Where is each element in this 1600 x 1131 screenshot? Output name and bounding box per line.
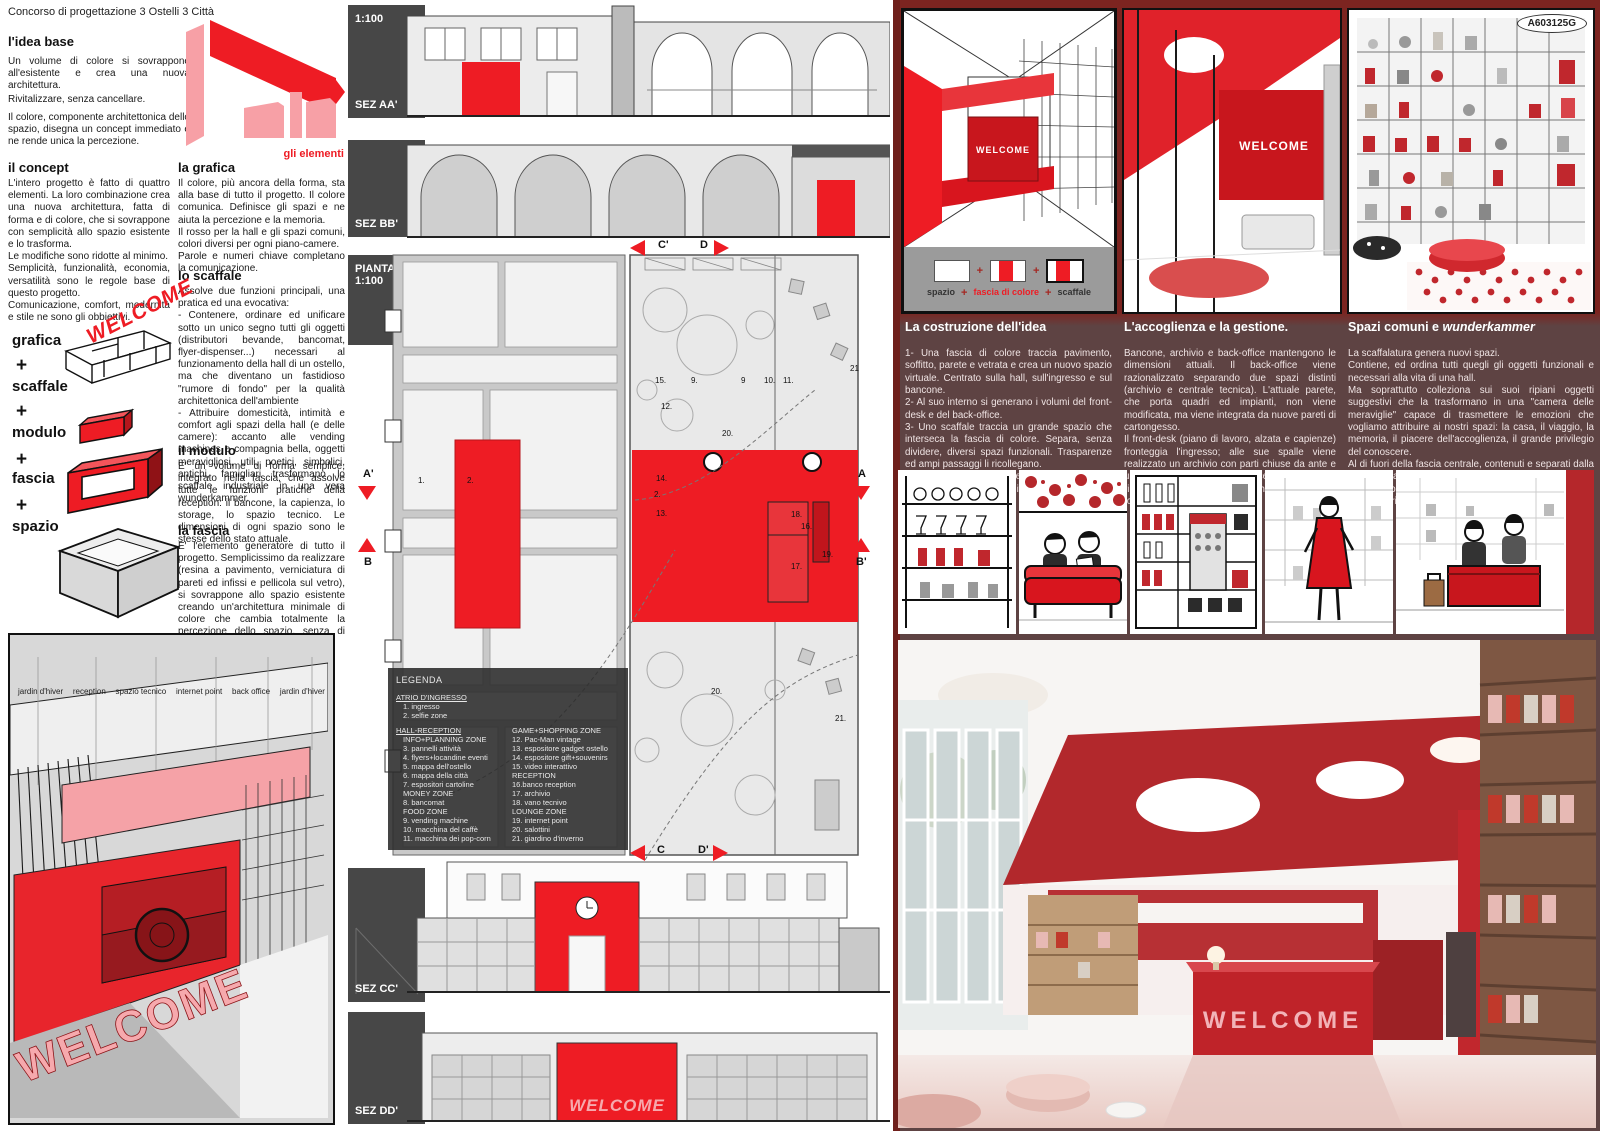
red-bottles xyxy=(918,548,990,566)
list-item: jardin d'hiver xyxy=(280,687,325,696)
list-item: 5. mappa dell'ostello xyxy=(403,762,504,771)
list-item: 16.banco reception xyxy=(512,780,620,789)
list-item: 9. vending machine xyxy=(403,816,504,825)
competition-board: Concorso di progettazione 3 Ostelli 3 Ci… xyxy=(0,0,1600,1131)
welcome-hall-text: WELCOME xyxy=(1239,139,1309,153)
red-desk xyxy=(1448,566,1540,606)
list-item: back office xyxy=(232,687,270,696)
list-item: INFO+PLANNING ZONE xyxy=(403,735,504,744)
list-item: 19. internet point xyxy=(512,816,620,825)
plus-sign: + xyxy=(16,355,27,377)
marker-arrow xyxy=(358,538,376,552)
elements-stack-icons xyxy=(52,325,184,625)
render-hall: WELCOME xyxy=(1122,8,1342,314)
rug-pattern xyxy=(1407,262,1591,310)
red-band xyxy=(1566,470,1594,634)
plus-sign: + xyxy=(16,401,27,423)
plan-legend: LEGENDA ATRIO D'INGRESSO 1. ingresso2. s… xyxy=(388,668,628,850)
welcome-dd-text: WELCOME xyxy=(569,1096,665,1115)
marker-a: A xyxy=(858,468,866,480)
shelf-edge xyxy=(1324,65,1340,255)
section-aa-drawing xyxy=(407,0,890,124)
render-shelving: A603125G xyxy=(1347,8,1595,314)
grafica-heading: la grafica xyxy=(178,160,235,175)
list-item: 6. mappa della città xyxy=(403,771,504,780)
element-fascia: fascia xyxy=(12,470,55,487)
marker-b1: B' xyxy=(856,556,867,568)
red-fascia-band-left xyxy=(455,440,520,628)
dark-pouf xyxy=(1353,236,1401,260)
scaffale-icon xyxy=(1046,259,1084,283)
legend-title: LEGENDA xyxy=(396,675,620,686)
spazio-icon xyxy=(60,529,178,617)
column-heading: Spazi comuni e wunderkammer xyxy=(1348,320,1594,334)
sez-aa-label: SEZ AA' xyxy=(355,99,398,111)
render-wireframe: WELCOME + + spazio + fascia di colore + … xyxy=(901,8,1117,314)
shelving-render-drawing xyxy=(1349,10,1593,312)
round-light xyxy=(1316,761,1404,799)
logo-graphic xyxy=(178,16,345,156)
marker-arrow xyxy=(852,538,870,552)
list-item: 4. flyers+locandine eventi xyxy=(403,753,504,762)
vending-machine xyxy=(1190,514,1226,590)
red-fascia-section xyxy=(462,62,520,116)
fascia-heading: la fascia xyxy=(178,523,229,538)
legend-col2-items: 12. Pac-Man vintage13. espositore gadget… xyxy=(512,735,620,843)
sez-dd-label: SEZ DD' xyxy=(355,1105,398,1117)
list-item: reception xyxy=(73,687,106,696)
panel-vending xyxy=(1130,470,1262,634)
panel-reception xyxy=(1396,470,1594,634)
concept-heading: il concept xyxy=(8,160,69,175)
spazio-icon xyxy=(934,260,970,282)
round-light xyxy=(1136,778,1260,832)
list-item: 10. macchina del caffè xyxy=(403,825,504,834)
wireframe-perspective: WELCOME xyxy=(904,11,1114,247)
list-item: 13. espositore gadget ostello xyxy=(512,744,620,753)
scale-label: 1:100 xyxy=(355,13,383,25)
list-item: RECEPTION xyxy=(512,771,620,780)
welcome-render-text: WELCOME xyxy=(976,145,1030,155)
legend-col1-header: HALL-RECEPTION xyxy=(396,726,504,735)
section-dd-drawing: WELCOME xyxy=(407,1015,890,1128)
legend-atrio-header: ATRIO D'INGRESSO xyxy=(396,693,620,702)
sofa-seat xyxy=(1025,578,1121,604)
list-item: 3. pannelli attività xyxy=(403,744,504,753)
modulo-heading: il modulo xyxy=(178,443,236,458)
round-rug xyxy=(1149,258,1269,298)
legend-col2: GAME+SHOPPING ZONE 12. Pac-Man vintage13… xyxy=(512,726,620,843)
diagram-labels: spazio + fascia di colore + scaffale xyxy=(927,287,1091,299)
plus-sign: + xyxy=(1033,265,1039,277)
marker-c1: C' xyxy=(658,239,669,251)
concept-diagram-strip: + + spazio + fascia di colore + scaffale xyxy=(904,247,1114,311)
hall-photo-render: WELCOME xyxy=(898,640,1596,1128)
desk-reflection xyxy=(1163,1055,1403,1128)
sofa xyxy=(1242,215,1314,249)
idea-base-heading: l'idea base xyxy=(8,34,74,49)
windows xyxy=(425,28,577,60)
marker-arrow xyxy=(714,240,729,256)
list-item: jardin d'hiver xyxy=(18,687,63,696)
desk-emblem xyxy=(136,909,188,961)
list-item: FOOD ZONE xyxy=(403,807,504,816)
arches xyxy=(647,33,877,116)
legend-col2-header: GAME+SHOPPING ZONE xyxy=(512,726,620,735)
fascia-icon xyxy=(68,449,162,513)
diagram-label-fascia: fascia di colore xyxy=(973,287,1039,299)
legend-col1-items: INFO+PLANNING ZONE3. pannelli attività4.… xyxy=(396,735,504,843)
diagram-label-scaffale: scaffale xyxy=(1057,287,1091,299)
panel-sofa-couple xyxy=(1019,470,1127,634)
list-item: LOUNGE ZONE xyxy=(512,807,620,816)
legend-col1: HALL-RECEPTION INFO+PLANNING ZONE3. pann… xyxy=(396,726,504,843)
sez-cc-label: SEZ CC' xyxy=(355,983,398,995)
list-item: 18. vano tecnivo xyxy=(512,798,620,807)
legend-atrio-items: 1. ingresso2. selfie zone xyxy=(396,702,620,720)
scaffale-wireframe-icon xyxy=(66,331,170,383)
glasses xyxy=(914,488,998,534)
modulo-icon xyxy=(80,410,132,443)
marker-arrow xyxy=(852,486,870,500)
list-item: 14. espositore gift+souvenirs xyxy=(512,753,620,762)
idea-base-p3: Il colore, componente architettonica del… xyxy=(8,112,190,149)
list-item: 8. bancomat xyxy=(403,798,504,807)
list-item: 12. Pac-Man vintage xyxy=(512,735,620,744)
red-wall xyxy=(904,66,942,247)
marker-b: B xyxy=(364,556,372,568)
gli-elementi-label: gli elementi xyxy=(230,148,344,160)
axonometric-frame: WELCOME jardin d'hiverreceptionspazio te… xyxy=(8,633,335,1125)
flower-pattern xyxy=(1025,474,1125,508)
board-code: A603125G xyxy=(1517,14,1587,33)
plus-sign: + xyxy=(977,265,983,277)
illustration-strip xyxy=(898,470,1596,634)
plus-sign: + xyxy=(16,495,27,517)
list-item: 15. video interattivo xyxy=(512,762,620,771)
diagram-icons: + + xyxy=(934,259,1085,283)
panel-red-dress xyxy=(1265,470,1393,634)
list-item: 2. selfie zone xyxy=(403,711,620,720)
desk-lamp xyxy=(1207,946,1225,964)
axon-labels-row: jardin d'hiverreceptionspazio tecnicoint… xyxy=(18,687,325,696)
hall-render-drawing: WELCOME xyxy=(1124,10,1340,312)
diagram-label-spazio: spazio xyxy=(927,287,955,299)
list-item: 1. ingresso xyxy=(403,702,620,711)
marker-d: D xyxy=(700,239,708,251)
axonometric-drawing: WELCOME xyxy=(10,635,328,1118)
right-shelving xyxy=(1480,640,1596,1090)
marker-a1: A' xyxy=(363,468,374,480)
welcome-desk-text: WELCOME xyxy=(1203,1007,1363,1034)
list-item: internet point xyxy=(176,687,222,696)
sez-bb-label: SEZ BB' xyxy=(355,218,398,230)
list-item: 7. espositori cartoline xyxy=(403,780,504,789)
back-cabinet xyxy=(1373,940,1443,1040)
red-door-section xyxy=(817,180,855,237)
list-item: MONEY ZONE xyxy=(403,789,504,798)
suitcase xyxy=(1424,580,1444,606)
marker-arrow xyxy=(358,486,376,500)
plus-sign: + xyxy=(16,449,27,471)
section-bb-drawing xyxy=(407,133,890,241)
fascia-icon xyxy=(990,260,1026,282)
floor-light xyxy=(240,935,328,1118)
list-item: spazio tecnico xyxy=(116,687,167,696)
red-dress xyxy=(1307,518,1351,588)
idea-base-p1: Un volume di colore si sovrappone all'es… xyxy=(8,56,190,93)
column-heading: L'accoglienza e la gestione. xyxy=(1124,320,1336,334)
left-shelving xyxy=(1028,895,1138,1015)
side-table xyxy=(1106,1102,1146,1118)
grafica-body: Il colore, più ancora della forma, sta a… xyxy=(178,178,345,276)
panel-glassware xyxy=(898,470,1016,634)
section-cc-drawing xyxy=(407,840,890,1002)
marker-arrow xyxy=(630,240,645,256)
desk-plan xyxy=(768,502,808,602)
list-item: 17. archivio xyxy=(512,789,620,798)
column-heading: La costruzione dell'idea xyxy=(905,320,1112,334)
idea-base-p2: Rivitalizzare, senza cancellare. xyxy=(8,94,190,106)
doorway xyxy=(1446,932,1476,1037)
staff-body xyxy=(1502,536,1526,564)
list-item: 20. salottini xyxy=(512,825,620,834)
